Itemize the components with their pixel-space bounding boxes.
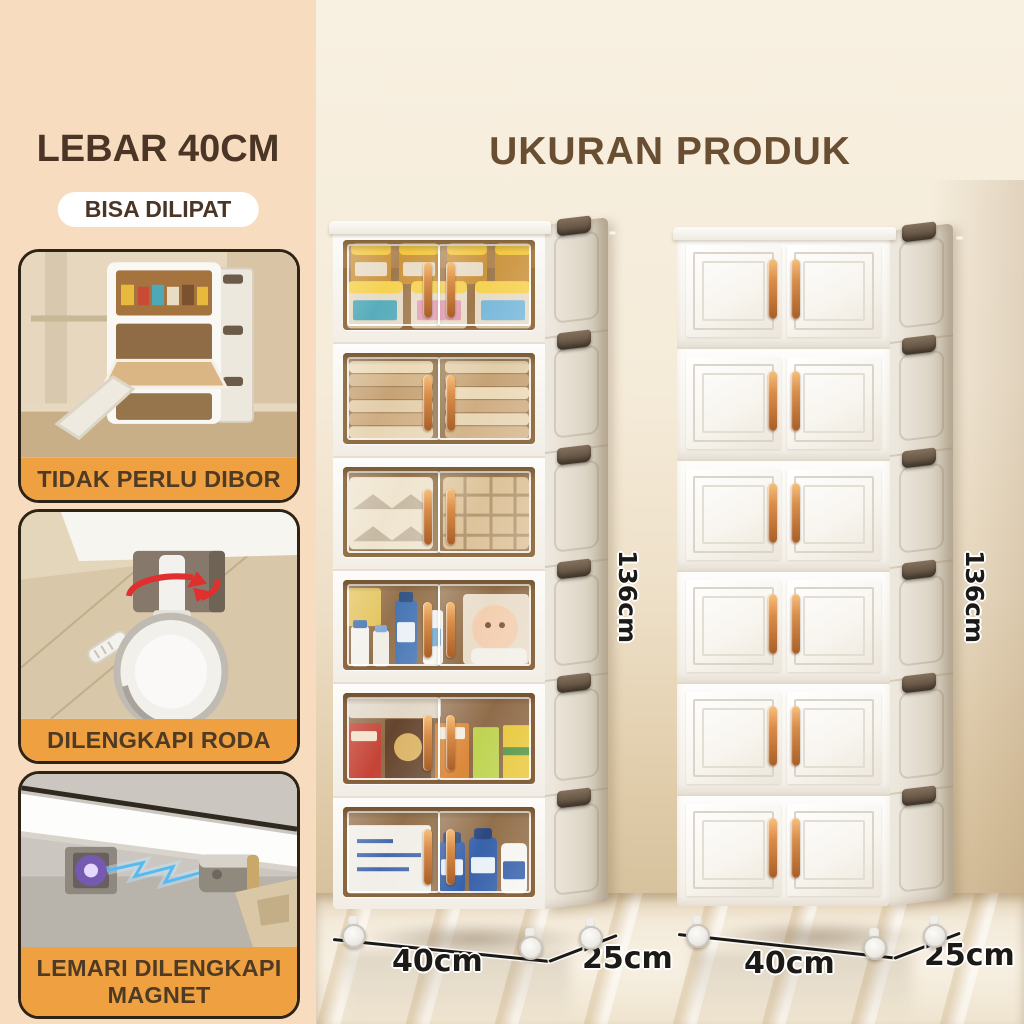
cabinet-transparent-doors: [333, 231, 545, 909]
door-handle: [446, 262, 455, 318]
latch-clip-icon: [902, 785, 936, 806]
feature-photo: [21, 512, 297, 719]
latch-clip-icon: [557, 330, 591, 351]
side-tier: [545, 217, 608, 339]
side-tier: [890, 449, 953, 570]
tier-window: [343, 240, 535, 330]
door-handle: [768, 483, 777, 543]
width-dimension-label: 40cm: [744, 946, 835, 981]
latch-clip-icon: [557, 444, 591, 465]
caster-wheel: [518, 928, 542, 958]
latch-clip-icon: [902, 560, 936, 581]
cabinet-tier: [333, 798, 545, 909]
cabinet-tier: [677, 684, 890, 796]
tier-window: [343, 693, 535, 783]
side-tier: [545, 560, 608, 682]
feature-label: LEMARI DILENGKAPI MAGNET: [21, 947, 297, 1016]
sidebar-title: LEBAR 40CM: [0, 128, 316, 171]
width-dimension-label: 40cm: [392, 944, 483, 979]
cabinet-lid: [673, 227, 896, 240]
caster-wheel: [578, 918, 602, 948]
tier-window: [343, 353, 535, 443]
door-handle: [423, 602, 432, 658]
door-handle: [768, 259, 777, 319]
side-tier: [545, 446, 608, 568]
closed-door-left: [686, 245, 781, 337]
swivel-caster-wheel-photo: [21, 512, 297, 719]
foldable-badge: BISA DILIPAT: [58, 192, 259, 227]
closed-door-left: [686, 580, 781, 672]
door-handle: [791, 594, 800, 654]
cabinet-tier: [677, 349, 890, 461]
latch-clip-icon: [902, 673, 936, 694]
door-handle: [768, 706, 777, 766]
door-handle: [446, 375, 455, 431]
door-handle: [768, 371, 777, 431]
side-tier: [890, 787, 953, 906]
cabinet-tier: [333, 571, 545, 684]
closed-door-left: [686, 692, 781, 784]
product-size-infographic: UKURAN PRODUK: [0, 0, 1024, 1024]
closed-door-right: [787, 469, 882, 561]
tier-window: [343, 580, 535, 670]
cabinet-side-panel: [545, 217, 608, 909]
side-tier: [890, 336, 953, 457]
door-handle: [791, 371, 800, 431]
feature-card: TIDAK PERLU DIBOR: [18, 249, 300, 503]
tier-window: [343, 807, 535, 897]
height-dimension-label: 136cm: [613, 550, 642, 643]
side-tier: [890, 562, 953, 683]
feature-photo: [21, 252, 297, 458]
latch-clip-icon: [557, 558, 591, 579]
cabinet-open-flip-doors-photo: [21, 252, 297, 458]
door-handle: [791, 259, 800, 319]
side-tier: [545, 789, 608, 909]
cabinet-tier: [333, 344, 545, 457]
door-handle: [423, 262, 432, 318]
cabinet-tier: [333, 458, 545, 571]
cabinet-tier: [677, 237, 890, 349]
door-handle: [768, 594, 777, 654]
caster-wheel: [685, 916, 709, 946]
door-handle: [446, 829, 455, 885]
cabinet-tier: [333, 684, 545, 797]
sidebar: LEBAR 40CM BISA DILIPAT: [0, 0, 316, 1024]
closed-door-right: [787, 580, 882, 672]
latch-clip-icon: [557, 673, 591, 694]
feature-card: DILENGKAPI RODA: [18, 509, 300, 764]
side-tier: [545, 675, 608, 797]
cabinet-tier: [677, 461, 890, 573]
door-handle: [423, 489, 432, 545]
cabinet-lid: [329, 221, 551, 234]
door-handle: [791, 818, 800, 878]
latch-clip-icon: [902, 221, 936, 242]
feature-card: LEMARI DILENGKAPI MAGNET: [18, 771, 300, 1019]
door-handle: [446, 715, 455, 771]
closed-door-left: [686, 469, 781, 561]
latch-clip-icon: [557, 215, 591, 236]
feature-label: TIDAK PERLU DIBOR: [21, 458, 297, 500]
main-title: UKURAN PRODUK: [316, 130, 1024, 174]
side-tier: [545, 332, 608, 454]
latch-clip-icon: [557, 787, 591, 808]
door-handle: [791, 706, 800, 766]
side-tier: [890, 223, 953, 344]
cabinet-closed-doors: [677, 237, 890, 906]
latch-clip-icon: [902, 334, 936, 355]
feature-label: DILENGKAPI RODA: [21, 719, 297, 761]
cabinet-side-panel: [890, 223, 953, 906]
door-handle: [423, 715, 432, 771]
door-handle: [791, 483, 800, 543]
closed-door-right: [787, 804, 882, 896]
side-tier: [890, 675, 953, 796]
door-handle: [768, 818, 777, 878]
closed-door-right: [787, 357, 882, 449]
cabinet-tier: [677, 572, 890, 684]
door-handle: [423, 375, 432, 431]
caster-wheel: [341, 916, 365, 946]
closed-door-right: [787, 245, 882, 337]
closed-door-left: [686, 804, 781, 896]
tier-window: [343, 467, 535, 557]
latch-clip-icon: [902, 447, 936, 468]
caster-wheel: [862, 928, 886, 958]
cabinet-tier: [677, 796, 890, 906]
feature-photo: [21, 774, 297, 947]
height-dimension-label: 136cm: [960, 550, 989, 643]
door-handle: [446, 489, 455, 545]
cabinet-tier: [333, 231, 545, 344]
caster-wheel: [922, 916, 946, 946]
door-handle: [446, 602, 455, 658]
door-handle: [423, 829, 432, 885]
magnetic-latch-closeup-photo: [21, 774, 297, 947]
closed-door-left: [686, 357, 781, 449]
closed-door-right: [787, 692, 882, 784]
